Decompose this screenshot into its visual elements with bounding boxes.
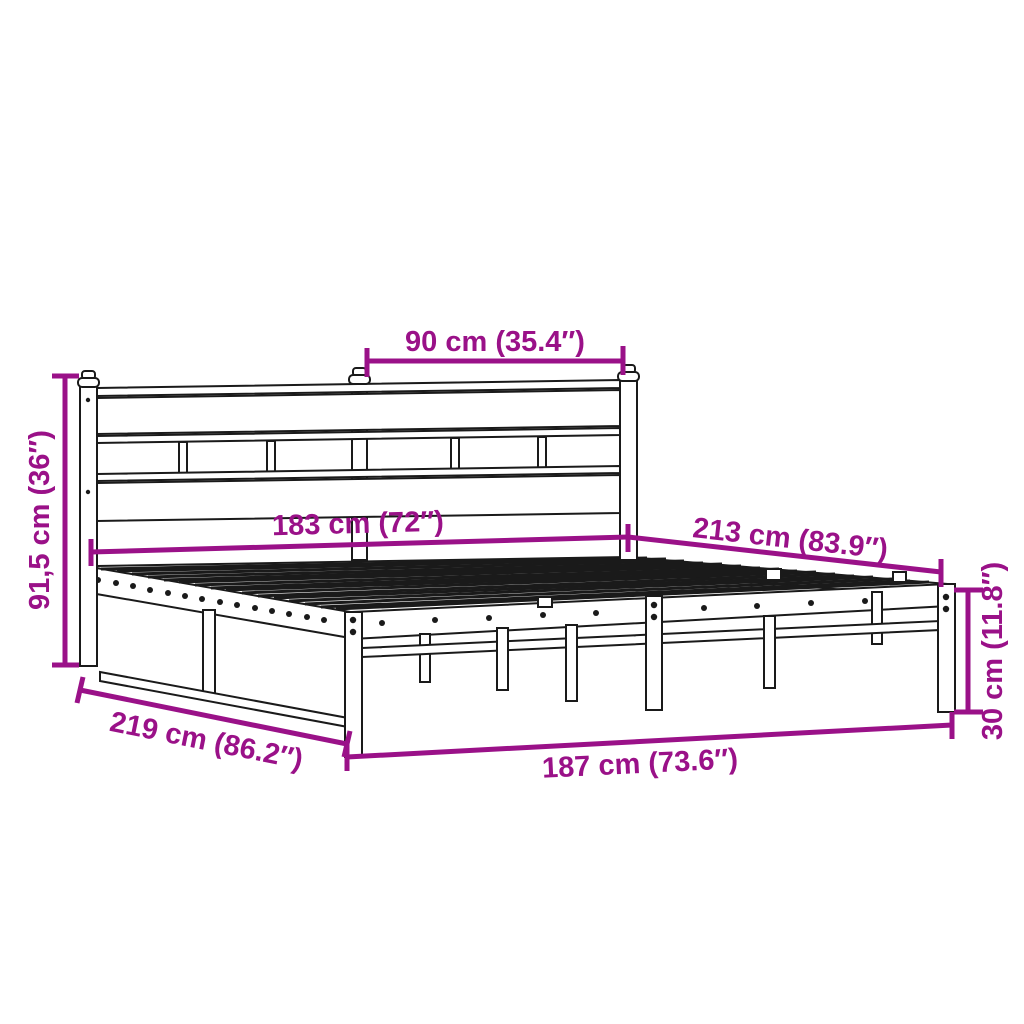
dimension-frame-height: 30 cm (11.8″): [954, 562, 1009, 740]
dim-label-headboard-height: 91,5 cm (36″): [24, 430, 56, 610]
dimension-headboard-height: 91,5 cm (36″): [24, 376, 79, 665]
dimension-headboard-half-width: 90 cm (35.4″): [367, 326, 623, 377]
dim-label-bed-length: 213 cm (83.9″): [691, 512, 889, 566]
product-dimension-diagram: 90 cm (35.4″) 183 cm (72″) 213 cm (83.9″…: [0, 0, 1024, 1024]
bed-frame-diagram: 90 cm (35.4″) 183 cm (72″) 213 cm (83.9″…: [0, 0, 1024, 1024]
slat-clip: [893, 572, 906, 582]
slat-clip: [538, 597, 552, 607]
slat-clip: [766, 569, 781, 580]
dim-label-frame-height: 30 cm (11.8″): [977, 562, 1009, 740]
headboard-post-left: [80, 386, 97, 666]
dim-label-outer-width: 187 cm (73.6″): [541, 743, 738, 785]
dim-label-headboard-half-width: 90 cm (35.4″): [405, 326, 585, 358]
dimension-outer-width: 187 cm (73.6″): [347, 712, 952, 785]
dim-label-bed-width: 183 cm (72″): [272, 506, 445, 542]
